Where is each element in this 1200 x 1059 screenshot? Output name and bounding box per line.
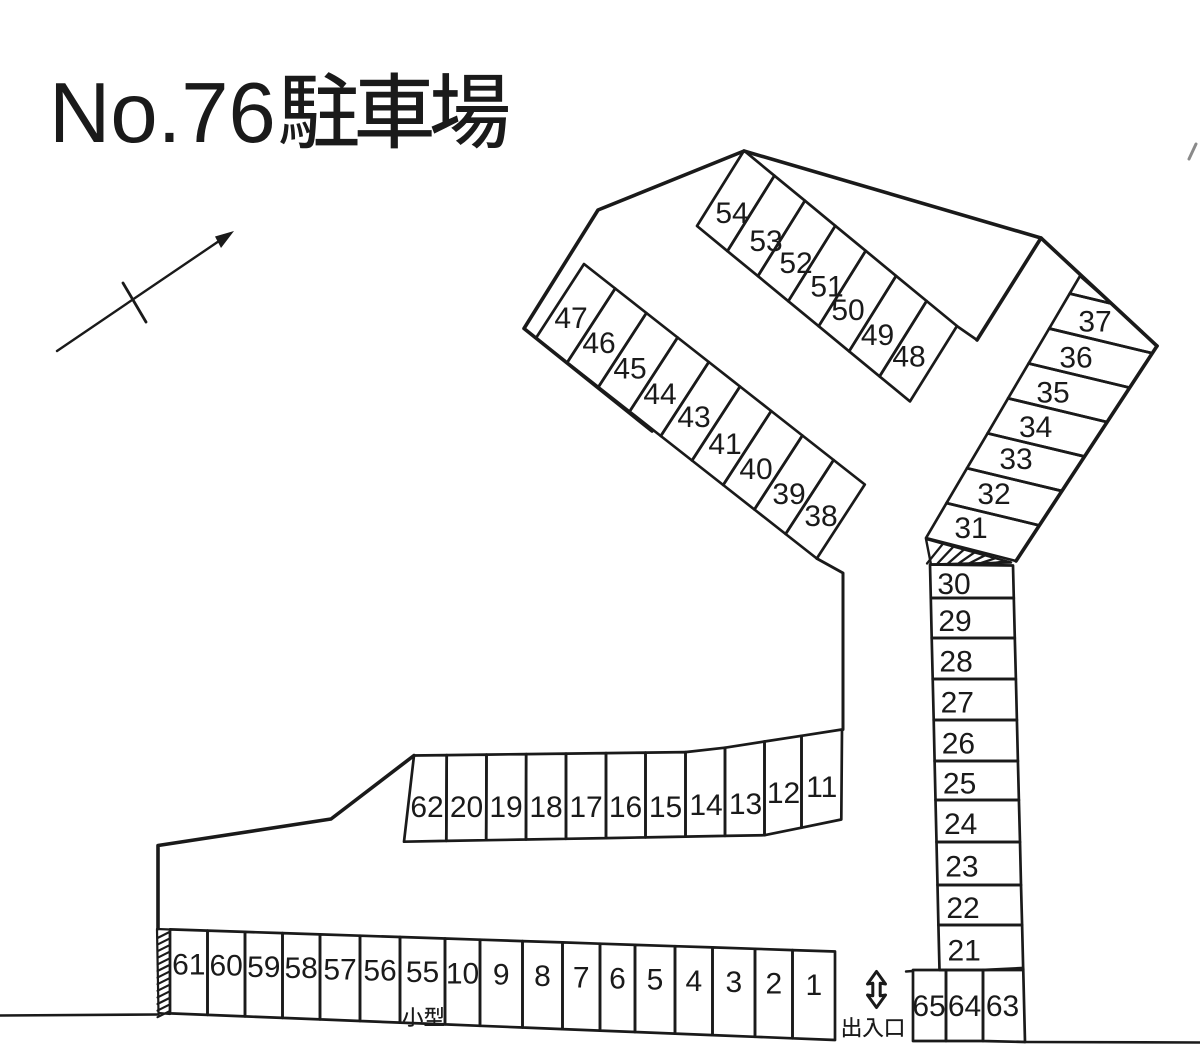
- svg-text:8: 8: [534, 960, 551, 993]
- svg-text:55: 55: [406, 956, 439, 989]
- svg-text:29: 29: [938, 605, 971, 638]
- svg-text:24: 24: [944, 808, 977, 841]
- svg-text:50: 50: [831, 294, 864, 327]
- svg-text:58: 58: [285, 952, 318, 985]
- svg-text:1: 1: [805, 969, 822, 1002]
- svg-text:26: 26: [942, 728, 975, 761]
- svg-text:28: 28: [939, 646, 972, 679]
- svg-text:48: 48: [892, 340, 925, 373]
- svg-text:22: 22: [946, 892, 979, 925]
- svg-text:60: 60: [210, 950, 243, 983]
- svg-text:18: 18: [529, 791, 562, 824]
- svg-text:14: 14: [689, 789, 722, 822]
- svg-text:3: 3: [725, 966, 742, 999]
- svg-text:39: 39: [772, 478, 805, 511]
- svg-text:15: 15: [649, 791, 682, 824]
- svg-text:16: 16: [609, 791, 642, 824]
- svg-text:20: 20: [450, 791, 483, 824]
- svg-text:43: 43: [677, 401, 710, 434]
- svg-text:37: 37: [1078, 305, 1111, 338]
- svg-text:45: 45: [613, 352, 646, 385]
- svg-text:12: 12: [767, 777, 800, 810]
- svg-text:5: 5: [647, 964, 664, 997]
- svg-text:44: 44: [643, 378, 676, 411]
- svg-text:2: 2: [765, 968, 782, 1001]
- svg-text:9: 9: [493, 959, 510, 992]
- svg-text:23: 23: [945, 851, 978, 884]
- svg-text:25: 25: [943, 768, 976, 801]
- svg-text:36: 36: [1059, 341, 1092, 374]
- svg-text:53: 53: [749, 225, 782, 258]
- svg-text:40: 40: [739, 453, 772, 486]
- svg-text:17: 17: [569, 791, 602, 824]
- svg-text:30: 30: [937, 568, 970, 601]
- svg-text:31: 31: [954, 512, 987, 545]
- svg-text:63: 63: [986, 990, 1019, 1023]
- svg-text:64: 64: [948, 990, 981, 1023]
- svg-text:6: 6: [609, 963, 626, 996]
- svg-text:32: 32: [977, 478, 1010, 511]
- svg-text:41: 41: [708, 428, 741, 461]
- svg-text:27: 27: [941, 687, 974, 720]
- svg-text:38: 38: [804, 500, 837, 533]
- svg-text:7: 7: [573, 961, 590, 994]
- svg-text:No.76: No.76: [49, 66, 276, 161]
- svg-text:59: 59: [247, 951, 280, 984]
- svg-text:61: 61: [172, 949, 205, 982]
- svg-text:33: 33: [999, 443, 1032, 476]
- svg-text:35: 35: [1036, 376, 1069, 409]
- svg-text:19: 19: [489, 791, 522, 824]
- svg-text:56: 56: [363, 955, 396, 988]
- svg-text:62: 62: [410, 791, 443, 824]
- svg-text:4: 4: [685, 965, 702, 998]
- svg-text:65: 65: [912, 990, 945, 1023]
- svg-text:57: 57: [323, 953, 356, 986]
- svg-text:34: 34: [1019, 411, 1052, 444]
- svg-text:21: 21: [948, 935, 981, 968]
- svg-text:13: 13: [729, 788, 762, 821]
- svg-text:10: 10: [446, 957, 479, 990]
- svg-text:52: 52: [779, 247, 812, 280]
- svg-text:49: 49: [861, 319, 894, 352]
- svg-text:46: 46: [582, 327, 615, 360]
- svg-text:11: 11: [806, 771, 837, 804]
